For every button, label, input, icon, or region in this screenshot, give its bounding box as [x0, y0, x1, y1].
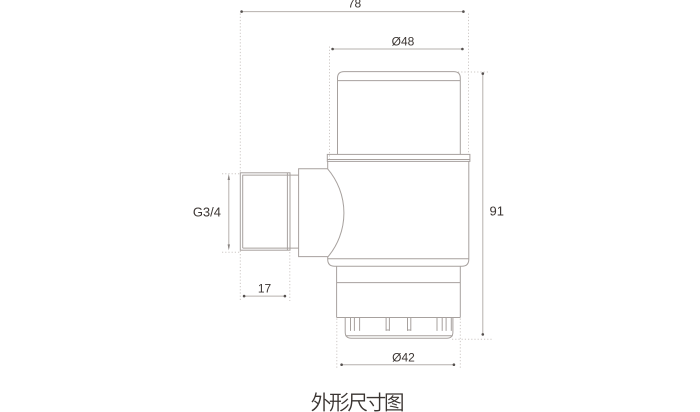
svg-text:Ø42: Ø42 — [392, 350, 415, 364]
svg-text:91: 91 — [490, 204, 504, 219]
svg-text:Ø48: Ø48 — [392, 34, 415, 48]
svg-text:G3/4: G3/4 — [193, 205, 221, 220]
svg-text:78: 78 — [348, 0, 362, 11]
svg-text:17: 17 — [258, 282, 272, 296]
